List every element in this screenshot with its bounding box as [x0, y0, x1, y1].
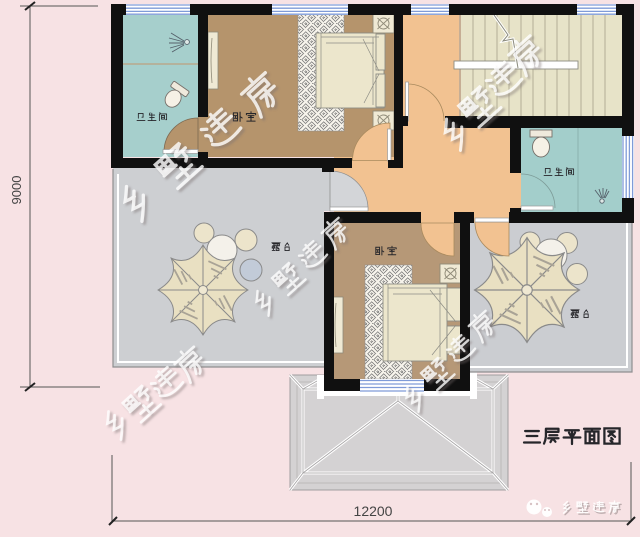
svg-text:12200: 12200	[354, 503, 393, 519]
svg-text:9000: 9000	[9, 176, 24, 205]
